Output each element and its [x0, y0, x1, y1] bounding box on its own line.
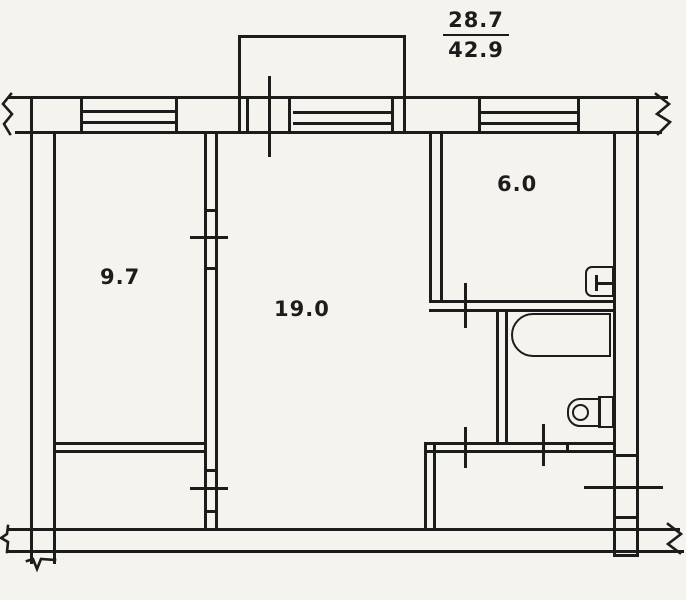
floor-plan: 28.7 42.9 [0, 0, 686, 600]
wall-break-bottom-left [0, 524, 14, 556]
door-mark-hall [464, 427, 467, 468]
right-wall-inner [613, 131, 616, 556]
bathroom-wall-bottom-outer [424, 442, 615, 445]
toilet-tank [598, 396, 614, 428]
window-middle-glass-2 [293, 122, 391, 125]
door-mark-room-lower [190, 487, 228, 490]
bathroom-door-jamb [566, 442, 569, 453]
hall-wall-left-outer [424, 442, 427, 528]
hall-wall-left-inner [433, 442, 436, 528]
window-kitchen-glass-2 [478, 122, 577, 125]
window-kitchen-frame-left [478, 96, 481, 133]
bottom-wall-inner [7, 528, 680, 531]
kitchen-wall-bottom-outer [429, 300, 615, 303]
window-kitchen-frame-right [577, 96, 580, 133]
left-wall-inner [53, 131, 56, 564]
kitchen-wall-left-outer [429, 131, 432, 303]
door-mark-kitchen [464, 283, 467, 328]
closet-wall-top-outer [53, 442, 206, 445]
area-fraction-numerator: 28.7 [443, 8, 509, 36]
bottom-wall-outer [7, 550, 684, 553]
wall-break-left-wall-cap [26, 556, 58, 574]
partition-rooms-jamb-2 [204, 267, 218, 270]
wall-break-top-left [0, 92, 16, 138]
top-wall-outer [8, 96, 668, 99]
window-middle-glass-1 [293, 111, 391, 114]
balcony-wall-left [238, 35, 241, 133]
kitchen-wall-bottom-inner [429, 309, 615, 312]
balcony-door-frame-left [246, 98, 249, 133]
kitchen-sink-tap-horizontal [596, 282, 614, 285]
wall-break-bottom-right [664, 522, 686, 558]
closet-wall-top-inner [53, 450, 206, 453]
top-wall-inner [15, 131, 662, 134]
room-area-label-9-7: 9.7 [100, 265, 140, 289]
bathroom-wall-left-inner [505, 309, 508, 444]
entry-door-jamb-bottom [613, 516, 639, 519]
balcony-door-frame-right [288, 98, 291, 133]
toilet-bowl-circle [572, 404, 589, 421]
door-mark-room-upper [190, 236, 228, 239]
bathroom-wall-left-outer [496, 309, 499, 444]
window-left-frame-left [80, 96, 83, 133]
room-area-label-19-0: 19.0 [274, 297, 330, 321]
balcony-wall-top [238, 35, 406, 38]
balcony-wall-right [403, 35, 406, 133]
window-middle-frame-right [391, 96, 394, 133]
balcony-door-mark [268, 76, 271, 157]
entry-door-jamb-top [613, 454, 639, 457]
partition-rooms-jamb-4 [204, 510, 218, 513]
door-mark-bathroom [542, 424, 545, 466]
window-left-frame-right [175, 96, 178, 133]
room-area-label-6-0: 6.0 [497, 172, 537, 196]
partition-rooms-jamb-3 [204, 469, 218, 472]
window-kitchen-glass-1 [478, 111, 577, 114]
door-mark-entry [584, 486, 663, 489]
window-left-glass-1 [80, 110, 177, 113]
left-wall-outer [30, 96, 33, 564]
area-fraction-denominator: 42.9 [438, 36, 514, 62]
bathroom-wall-bottom-inner [424, 450, 615, 453]
area-fraction: 28.7 42.9 [438, 8, 514, 62]
window-left-glass-2 [80, 121, 177, 124]
wall-break-top-right [652, 92, 674, 138]
right-wall-bottom-cap [613, 554, 639, 557]
kitchen-wall-left-inner [440, 131, 443, 303]
bathtub-icon [511, 313, 611, 357]
partition-rooms-jamb-1 [204, 209, 218, 212]
